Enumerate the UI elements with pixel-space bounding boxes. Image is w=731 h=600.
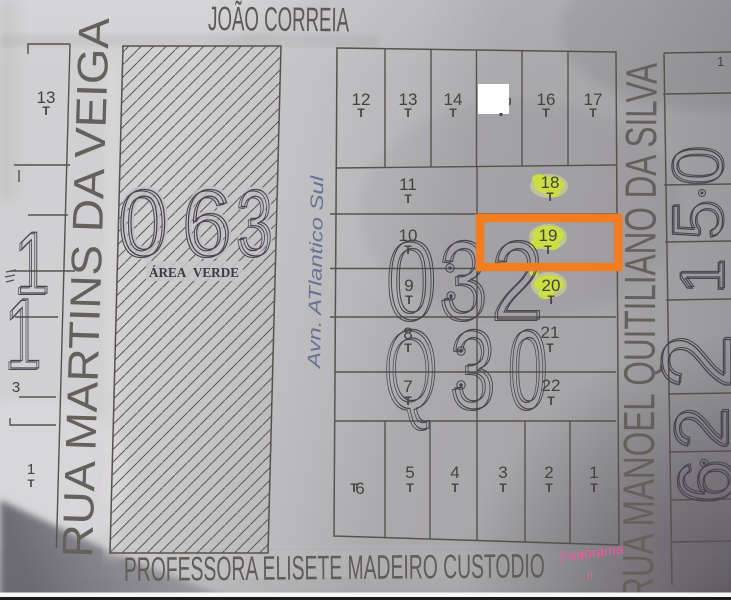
svg-text:Q: Q: [384, 309, 436, 434]
svg-text:3: 3: [236, 172, 271, 277]
svg-text:T: T: [590, 481, 598, 495]
svg-text:T: T: [547, 394, 555, 408]
svg-text:T: T: [451, 481, 459, 495]
svg-text:RUA MANOEL QUITILIANO DA SILVA: RUA MANOEL QUITILIANO DA SILVA: [614, 62, 667, 600]
svg-text:5: 5: [405, 463, 414, 482]
svg-text:2: 2: [643, 332, 731, 388]
svg-text:T: T: [544, 243, 552, 257]
svg-text:2: 2: [544, 463, 553, 482]
svg-text:0: 0: [508, 309, 546, 434]
svg-text:Avn. ATlantico Sul: Avn. ATlantico Sul: [304, 174, 327, 369]
svg-text:3: 3: [450, 309, 494, 434]
svg-text:T: T: [357, 106, 365, 120]
svg-text:T: T: [546, 190, 554, 204]
svg-text:T: T: [350, 481, 358, 495]
svg-text:T: T: [542, 106, 550, 120]
svg-text:5: 5: [661, 199, 731, 239]
svg-text:T: T: [406, 481, 414, 495]
svg-text:4: 4: [450, 463, 459, 482]
svg-text:2: 2: [661, 406, 731, 448]
svg-text:1: 1: [717, 54, 724, 69]
svg-text:T: T: [404, 106, 412, 120]
svg-text:JOÃO CORREIA: JOÃO CORREIA: [208, 0, 350, 39]
svg-text:1: 1: [589, 463, 598, 482]
svg-text:0: 0: [661, 145, 731, 185]
svg-text:T: T: [589, 106, 597, 120]
svg-text:0: 0: [118, 172, 166, 277]
svg-text:3: 3: [498, 463, 507, 482]
svg-text:T: T: [449, 106, 457, 120]
svg-text:1: 1: [670, 258, 731, 292]
svg-text:T: T: [545, 481, 553, 495]
svg-text:PROFESSORA ELISETE MADEIRO CUS: PROFESSORA ELISETE MADEIRO CUSTODIO: [124, 547, 545, 589]
svg-text:T: T: [547, 293, 555, 307]
svg-text:1: 1: [4, 280, 40, 392]
svg-text:T: T: [28, 478, 35, 490]
svg-text:T: T: [404, 192, 412, 206]
svg-text:T: T: [499, 481, 507, 495]
svg-text:6: 6: [663, 459, 731, 504]
svg-text:6: 6: [182, 172, 230, 277]
svg-text:1: 1: [27, 461, 35, 478]
svg-text:T: T: [42, 104, 50, 118]
svg-text:ÁREA VERDE: ÁREA VERDE: [149, 264, 239, 281]
